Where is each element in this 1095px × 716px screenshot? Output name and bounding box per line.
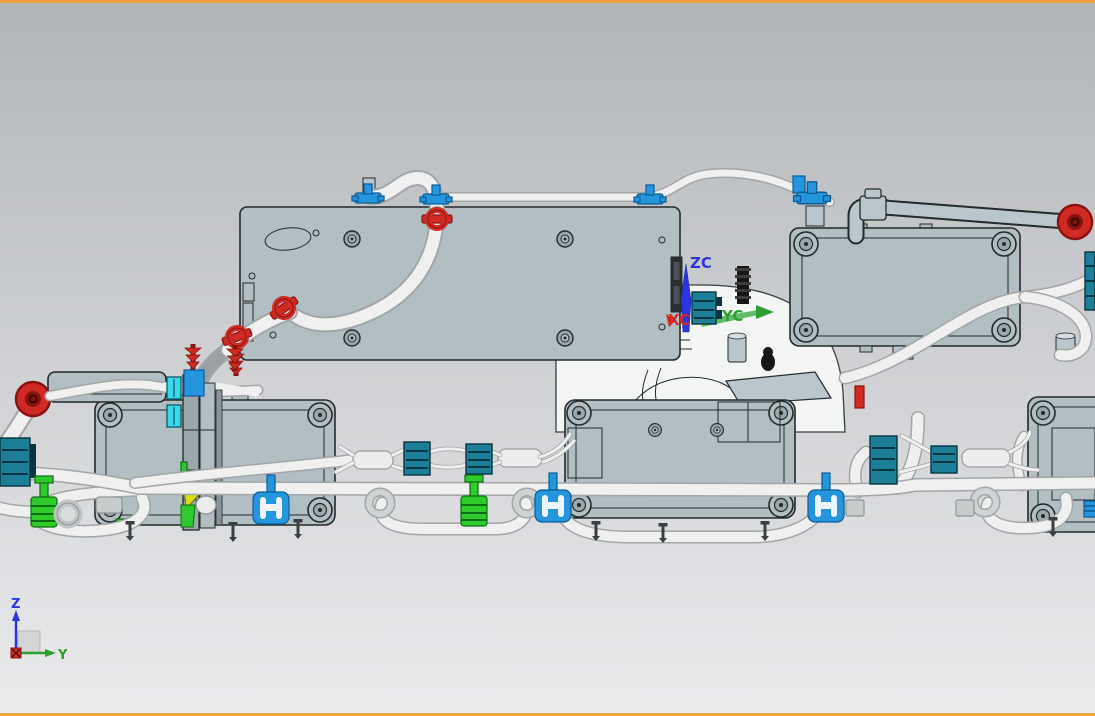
panel-edge-connector-slot [671,257,682,312]
corrugated-stud [735,266,751,304]
triad-origin-marker [11,648,21,658]
teal-connector-b[interactable] [466,444,492,474]
triad-z-label: Z [11,597,20,612]
cad-viewport: ZC XC YC Z Y [0,0,1095,716]
green-block [181,505,195,527]
red-grommet-left[interactable] [16,382,50,416]
top-cover-panel[interactable] [240,207,682,360]
red-grommet-right[interactable] [1058,205,1092,239]
red-sliver [855,386,864,408]
blue-bracket-clip[interactable] [184,370,204,396]
body-cylinder-stub [728,333,746,362]
teal-connector-right-edge[interactable] [1085,252,1095,310]
wcs-x-label[interactable]: XC [668,311,690,329]
wcs-y-label[interactable]: YC [721,307,743,325]
viewport-border-top [0,0,1095,3]
teal-connector-left-edge[interactable] [0,438,36,486]
teal-connector-c[interactable] [870,436,897,484]
triad-y-label: Y [57,648,68,663]
wcs-z-label[interactable]: ZC [690,254,712,272]
teal-connector-d[interactable] [931,446,957,473]
teal-connector-a[interactable] [404,442,430,475]
small-blue-connector[interactable] [1084,501,1095,517]
